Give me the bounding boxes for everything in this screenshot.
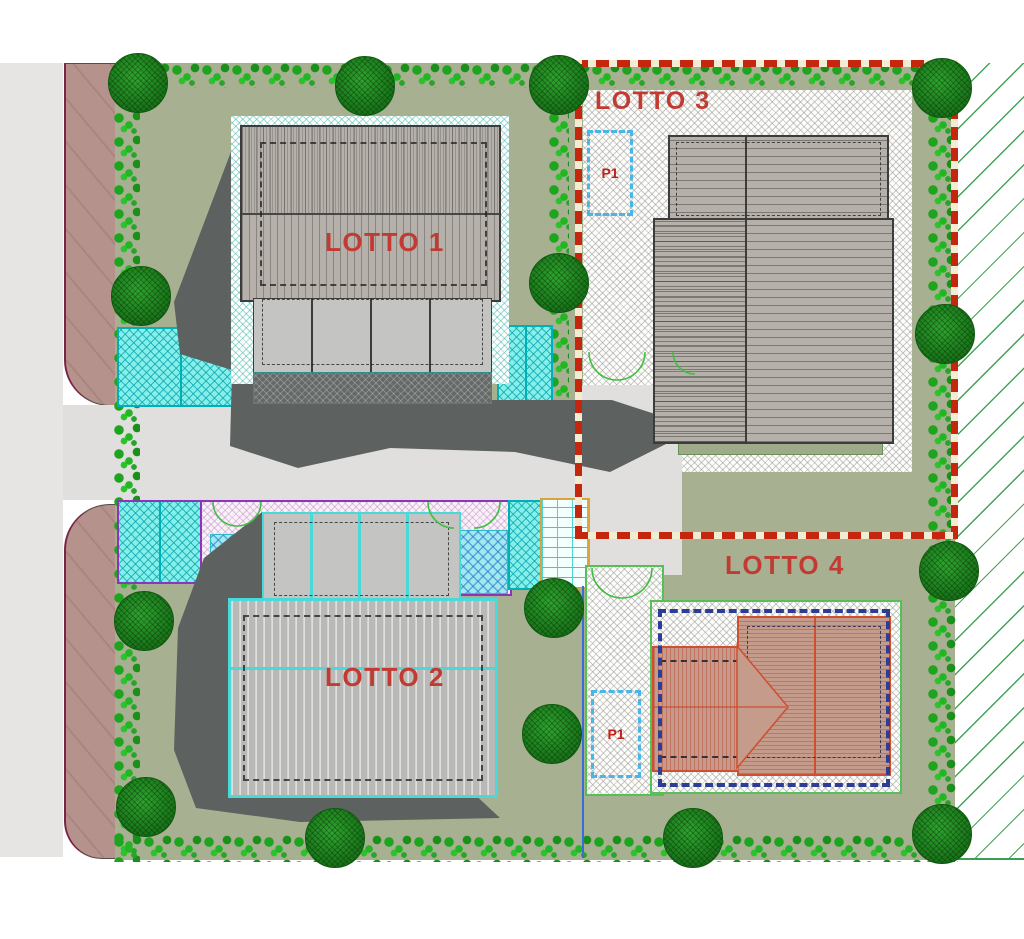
lotto3-roof-upper <box>668 135 889 223</box>
lotto3-label: LOTTO 3 <box>595 87 711 116</box>
lotto2-lotto4-parcel-line <box>582 586 584 858</box>
tree <box>915 304 975 364</box>
hedge-bottom <box>112 834 958 862</box>
tree <box>524 578 584 638</box>
trellis-panel-right <box>458 530 508 594</box>
lotto2-roof-dashed-outline <box>243 615 483 781</box>
brick-paved-patch <box>540 498 590 590</box>
lotto1-canopy-dashed-outline <box>262 299 483 365</box>
tree <box>919 541 979 601</box>
lotto4-building-boundary-dashed <box>658 609 890 787</box>
road-left-strip <box>0 63 63 857</box>
lotto3-roof-main <box>653 218 894 444</box>
lotto2-roof <box>228 598 498 798</box>
tree <box>912 58 972 118</box>
aqua-patch-center <box>508 500 544 590</box>
lotto3-boundary-top <box>575 60 958 67</box>
lotto2-aqua-driveway-left <box>117 500 205 584</box>
driveway-divider <box>180 329 182 405</box>
tree <box>335 56 395 116</box>
tree <box>522 704 582 764</box>
lotto4-label: LOTTO 4 <box>725 550 845 581</box>
lotto3-roof-dashed-outline <box>676 142 881 216</box>
tree <box>529 55 589 115</box>
lotto1-roof-dashed-outline <box>260 142 487 286</box>
sidewalk-lower <box>64 504 117 859</box>
roof-divider <box>745 220 747 442</box>
parking-p1-lotto3: P1 <box>587 130 633 216</box>
tree <box>108 53 168 113</box>
field-hatch-area <box>955 63 1024 860</box>
road-horizontal <box>63 405 585 500</box>
lotto1-roof <box>240 125 501 302</box>
tree <box>305 808 365 868</box>
driveway-divider <box>525 327 527 405</box>
lotto3-roof-left-slope <box>655 220 745 442</box>
lotto2-canopy <box>262 512 461 604</box>
tree <box>912 804 972 864</box>
driveway-divider <box>159 502 161 582</box>
tree <box>663 808 723 868</box>
lotto3-boundary-right <box>951 60 958 539</box>
lotto1-terrace-paving <box>253 372 492 404</box>
sidewalk-upper <box>64 63 117 406</box>
lotto2-canopy-dashed-outline <box>274 522 449 596</box>
tree <box>114 591 174 651</box>
site-plan-canvas: P1 P1 LOTTO 1 LOTTO 2 LOTTO 3 LOTTO 4 <box>0 0 1024 939</box>
tree <box>529 253 589 313</box>
lotto3-boundary-bottom <box>575 532 958 539</box>
tree <box>116 777 176 837</box>
parking-p1-label: P1 <box>601 165 618 181</box>
parking-p1-lotto4: P1 <box>591 690 641 778</box>
parking-p1-label: P1 <box>607 726 624 742</box>
lotto1-canopy <box>253 298 492 374</box>
lotto2-label: LOTTO 2 <box>325 662 445 693</box>
lotto1-label: LOTTO 1 <box>325 227 445 258</box>
tree <box>111 266 171 326</box>
hedge-left <box>112 62 140 862</box>
trellis-panel-left <box>210 534 266 594</box>
lotto1-aqua-driveway-left <box>117 327 244 407</box>
